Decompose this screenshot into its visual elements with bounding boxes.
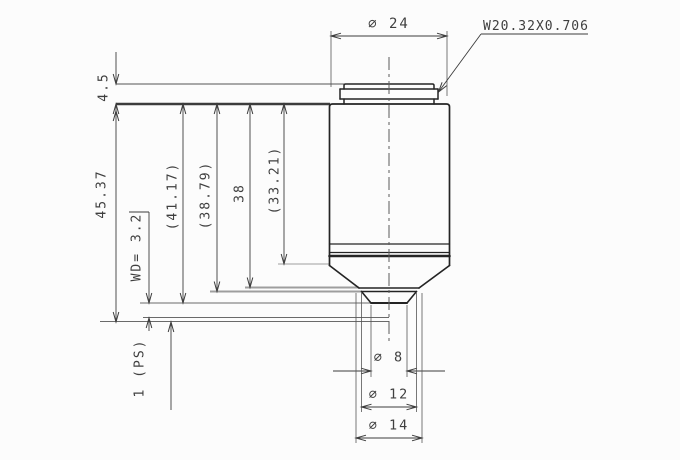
objective-dimension-drawing: ∅ 24 W20.32X0.706 4.5 45.37 WD= 3.2 (41.… [0, 0, 680, 460]
label-nose-diameter: ∅ 14 [369, 418, 410, 434]
label-working-distance: WD= 3.2 [130, 213, 145, 282]
dim-ref-33-21: (33.21) [268, 104, 287, 264]
thread-spec-leader: W20.32X0.706 [439, 19, 589, 92]
label-ref-38-79: (38.79) [199, 161, 214, 230]
label-top-diameter: ∅ 24 [368, 16, 410, 32]
label-mid-diameter: ∅ 12 [369, 387, 410, 403]
label-ref-33-21: (33.21) [268, 146, 283, 215]
dim-ref-38-79: (38.79) [199, 104, 220, 292]
dim-cap-height: 4.5 [97, 52, 119, 102]
dim-ref-38: 38 [233, 104, 253, 288]
leader-line [439, 34, 482, 92]
label-thread-spec: W20.32X0.706 [483, 19, 589, 34]
label-ref-38: 38 [233, 183, 248, 203]
label-ref-41-17: (41.17) [166, 162, 181, 231]
label-parfocal-length: 45.37 [95, 169, 110, 218]
label-slide-ref: 1 (PS) [133, 339, 148, 398]
drawing-canvas: ∅ 24 W20.32X0.706 4.5 45.37 WD= 3.2 (41.… [0, 0, 680, 460]
dim-slide-ref: 1 (PS) [133, 322, 174, 410]
dim-working-distance: WD= 3.2 [129, 212, 152, 331]
dim-parfocal-length: 45.37 [95, 104, 119, 322]
label-cap-height: 4.5 [97, 72, 112, 101]
dim-ref-41-17: (41.17) [166, 104, 186, 303]
label-tip-diameter: ∅ 8 [374, 350, 404, 366]
